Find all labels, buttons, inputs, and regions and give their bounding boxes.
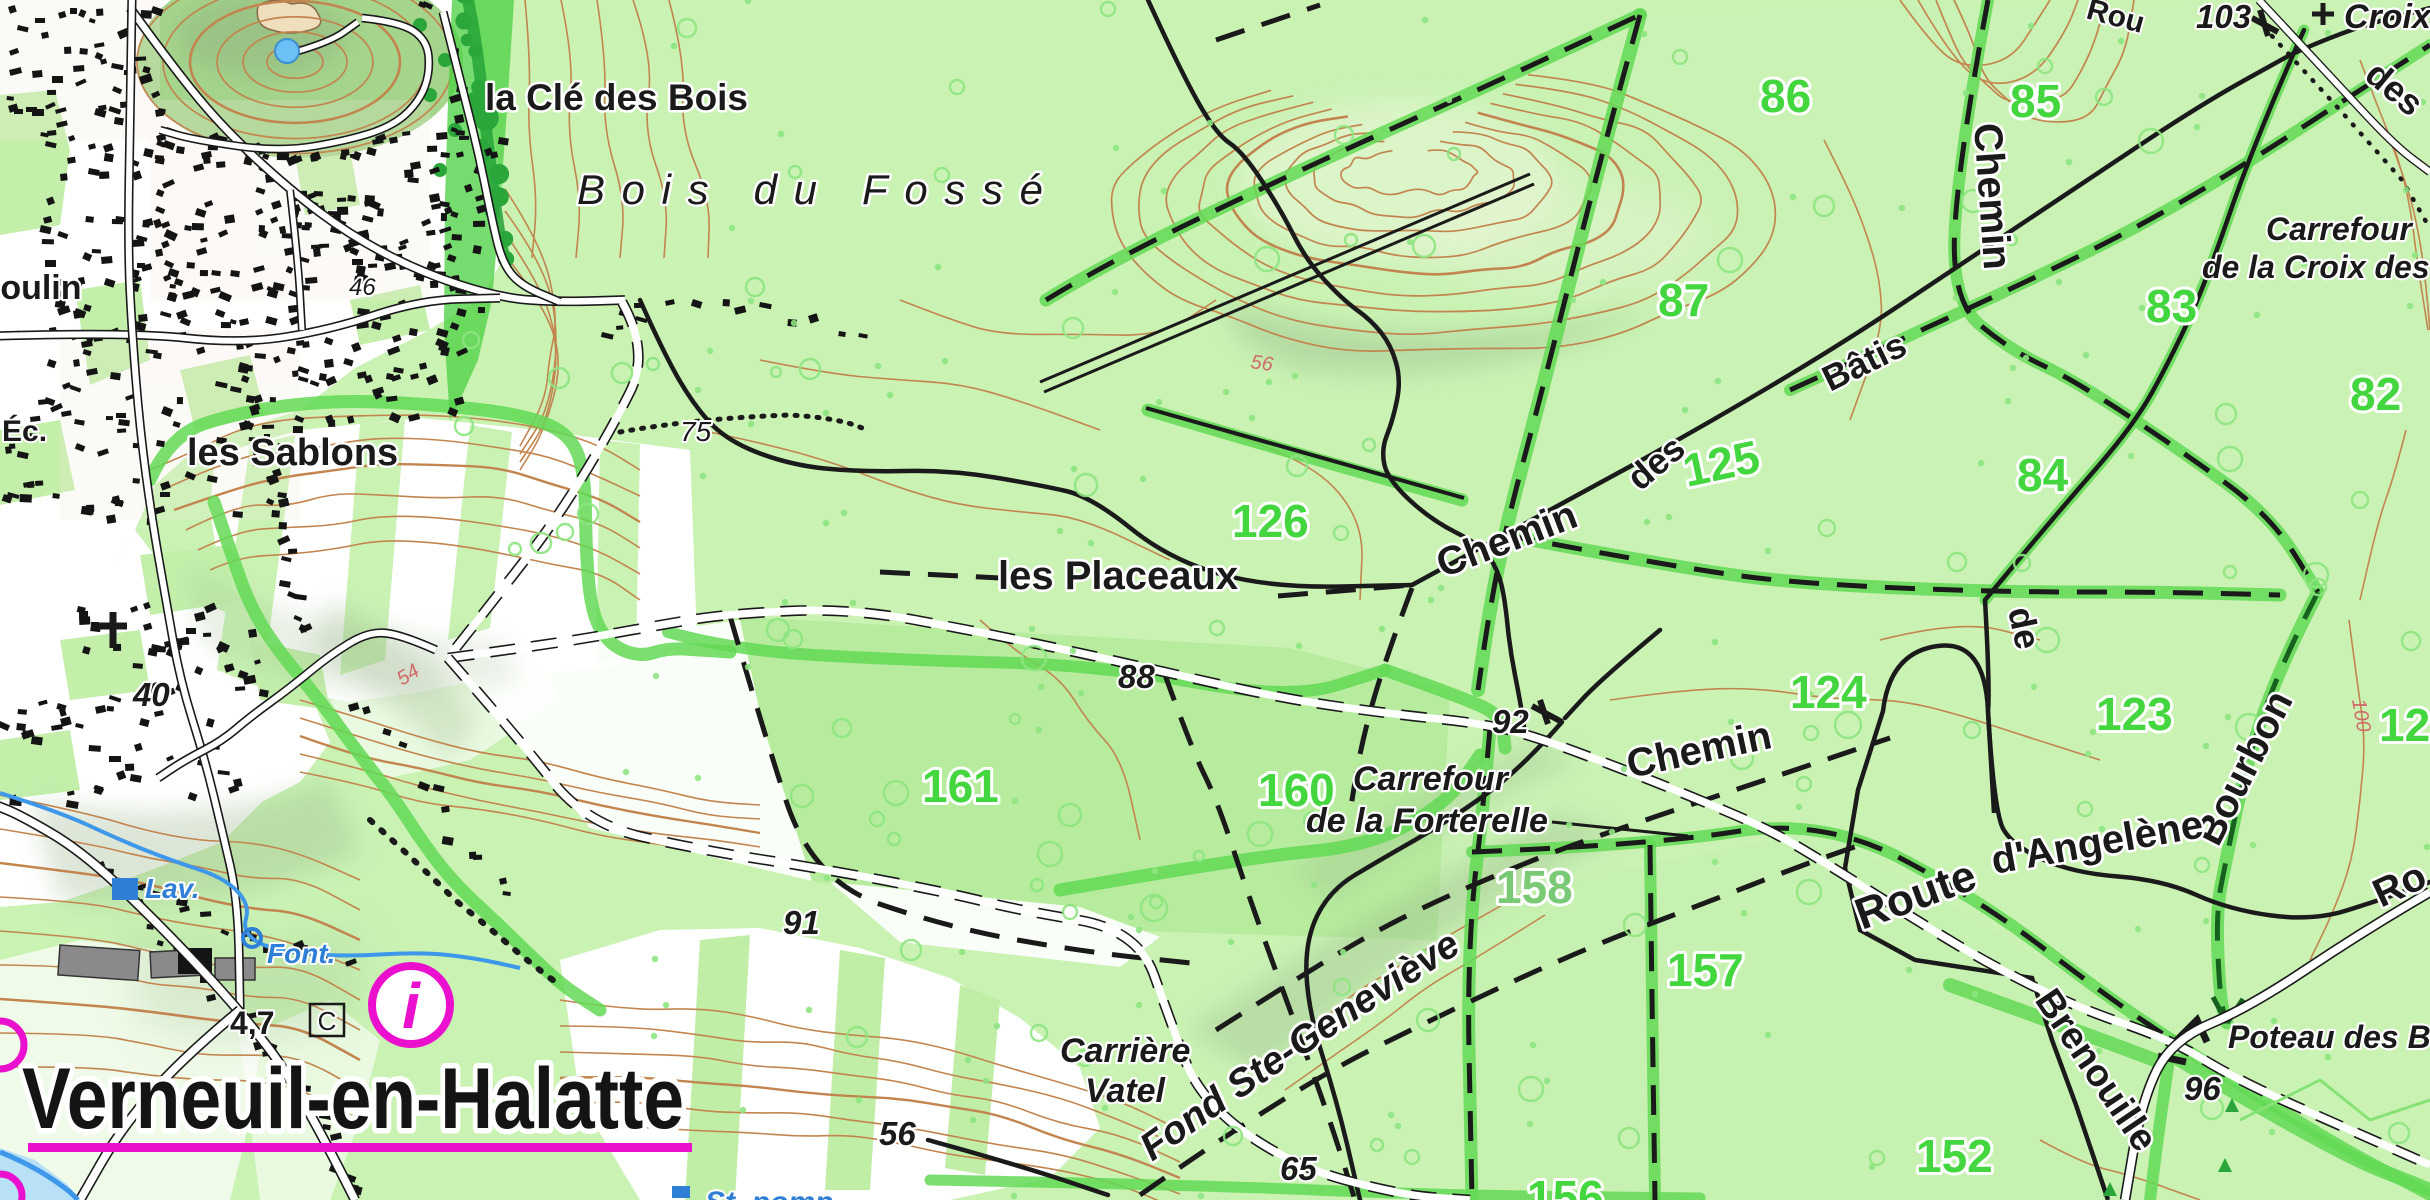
svg-text:Carrière: Carrière: [1060, 1032, 1190, 1070]
svg-text:Croix: Croix: [2344, 0, 2430, 36]
svg-text:Vatel: Vatel: [1085, 1072, 1167, 1110]
svg-text:84: 84: [2017, 449, 2069, 501]
svg-text:152: 152: [1916, 1130, 1993, 1182]
svg-text:Carrefour: Carrefour: [1353, 760, 1510, 798]
svg-text:Éc.: Éc.: [2, 414, 47, 448]
svg-text:la Clé des Bois: la Clé des Bois: [485, 77, 748, 118]
svg-text:Carrefour: Carrefour: [2266, 211, 2413, 247]
svg-text:126: 126: [1232, 495, 1309, 547]
svg-text:56: 56: [1249, 351, 1275, 376]
svg-text:158: 158: [1496, 861, 1573, 913]
svg-text:Verneuil-en-Halatte: Verneuil-en-Halatte: [22, 1051, 684, 1147]
svg-text:de: de: [2000, 603, 2049, 653]
svg-text:65: 65: [1280, 1150, 1317, 1187]
svg-text:Bois du Fossé: Bois du Fossé: [577, 166, 1055, 213]
svg-text:87: 87: [1658, 274, 1709, 326]
svg-text:75: 75: [680, 416, 712, 447]
svg-text:82: 82: [2350, 368, 2401, 420]
svg-text:161: 161: [922, 760, 999, 812]
svg-text:92: 92: [1492, 703, 1529, 740]
svg-text:les Placeaux: les Placeaux: [998, 554, 1238, 598]
svg-text:122: 122: [2379, 699, 2430, 751]
svg-text:les Sablons: les Sablons: [187, 432, 398, 474]
svg-text:83: 83: [2146, 280, 2197, 332]
svg-text:96: 96: [2184, 1070, 2221, 1107]
svg-text:46: 46: [349, 274, 376, 301]
svg-text:156: 156: [1527, 1171, 1604, 1200]
svg-text:88: 88: [1118, 658, 1155, 695]
svg-text:Font.: Font.: [267, 938, 335, 969]
svg-text:56: 56: [879, 1115, 916, 1152]
svg-text:St. pomp.: St. pomp.: [705, 1186, 842, 1200]
svg-text:de la Croix des Veneu: de la Croix des Veneu: [2202, 249, 2430, 285]
svg-text:123: 123: [2096, 688, 2173, 740]
svg-text:103: 103: [2196, 0, 2251, 35]
svg-text:Poteau des B: Poteau des B: [2228, 1019, 2430, 1055]
svg-text:de la Forterelle: de la Forterelle: [1306, 802, 1548, 840]
svg-text:C: C: [318, 1006, 337, 1036]
svg-text:85: 85: [2010, 75, 2061, 127]
svg-text:157: 157: [1667, 944, 1744, 996]
svg-text:4,7: 4,7: [230, 1005, 274, 1041]
svg-text:i: i: [402, 970, 421, 1042]
svg-text:124: 124: [1790, 666, 1867, 718]
svg-text:86: 86: [1760, 70, 1811, 122]
svg-text:Moulin: Moulin: [0, 269, 82, 307]
svg-text:Lav.: Lav.: [145, 873, 199, 904]
svg-text:40: 40: [132, 676, 170, 713]
svg-text:91: 91: [783, 904, 820, 941]
